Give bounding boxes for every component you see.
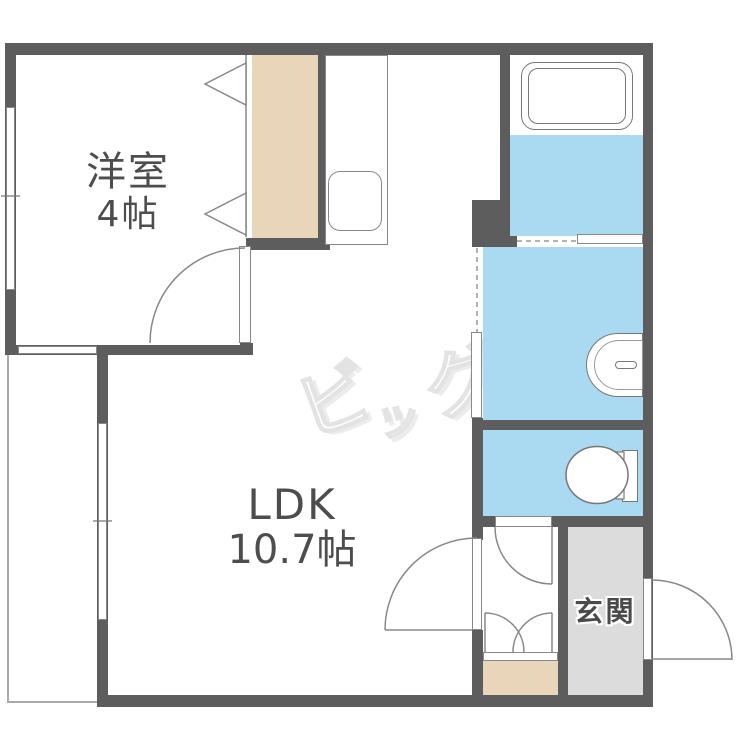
closet-bifold-door-icon bbox=[205, 193, 246, 235]
balcony-area bbox=[7, 355, 98, 703]
wall-toilet-top bbox=[472, 420, 643, 430]
kitchen-sink-icon bbox=[328, 171, 382, 231]
ldk-name: LDK bbox=[212, 481, 372, 528]
shoe-closet-door-arc-right bbox=[513, 613, 552, 652]
western-room-door-opening bbox=[239, 246, 251, 343]
wall-toilet-bottom-right bbox=[552, 516, 643, 527]
toilet-tank bbox=[622, 450, 638, 502]
western-room-size: 4帖 bbox=[50, 195, 206, 235]
western-room-door-arc bbox=[150, 248, 245, 343]
western-room-name: 洋室 bbox=[50, 150, 206, 195]
ldk-hall-door-opening bbox=[472, 538, 482, 630]
wall-toilet-bottom-left bbox=[472, 516, 495, 527]
wall-washroom-divider bbox=[472, 236, 517, 247]
western-room-label: 洋室 4帖 bbox=[50, 150, 206, 235]
wall-closet-bottom bbox=[246, 238, 330, 250]
entrance-door-leaf bbox=[643, 578, 652, 660]
wall-toilet-left bbox=[472, 418, 483, 516]
watermark-char: ビ bbox=[280, 333, 386, 459]
ldk-hall-door-arc bbox=[385, 538, 477, 630]
closet-floor bbox=[252, 55, 318, 238]
wall-jog-block bbox=[472, 200, 500, 237]
shoe-closet-door-arc-left bbox=[485, 613, 524, 652]
wall-hall-left-lower bbox=[472, 630, 483, 695]
closet-bifold-door-icon bbox=[205, 63, 246, 105]
entrance-step-edge bbox=[483, 652, 558, 661]
floor-plan: ビ ッ グ bbox=[0, 0, 750, 750]
toilet-room-floor bbox=[483, 430, 643, 516]
window-ldk-left bbox=[98, 423, 107, 620]
washroom-upper-floor bbox=[510, 135, 643, 236]
ldk-label: LDK 10.7帖 bbox=[212, 481, 372, 573]
watermark-char: ッ bbox=[373, 381, 423, 450]
entrance-label: 玄関 bbox=[568, 590, 643, 630]
entrance-door-arc bbox=[652, 580, 732, 660]
wall-entrance-left bbox=[558, 527, 568, 695]
toilet-door-opening bbox=[495, 516, 552, 527]
window-western-room-left bbox=[6, 107, 15, 290]
toilet-door-arc bbox=[495, 527, 552, 584]
washroom-sliding-door bbox=[577, 234, 643, 244]
window-western-room-bottom bbox=[18, 346, 97, 354]
wall-top bbox=[5, 43, 653, 55]
wall-bottom bbox=[97, 695, 653, 707]
bathtub-inner-rim bbox=[528, 68, 626, 124]
ldk-size: 10.7帖 bbox=[212, 528, 372, 573]
washbasin-faucet bbox=[615, 361, 637, 369]
wall-door-hinge-block bbox=[240, 343, 253, 355]
entrance-dirt-floor bbox=[483, 661, 558, 695]
company-watermark: ビ ッ グ bbox=[291, 326, 490, 440]
wall-bathroom-left bbox=[500, 55, 510, 237]
washroom-side-door bbox=[471, 332, 482, 418]
